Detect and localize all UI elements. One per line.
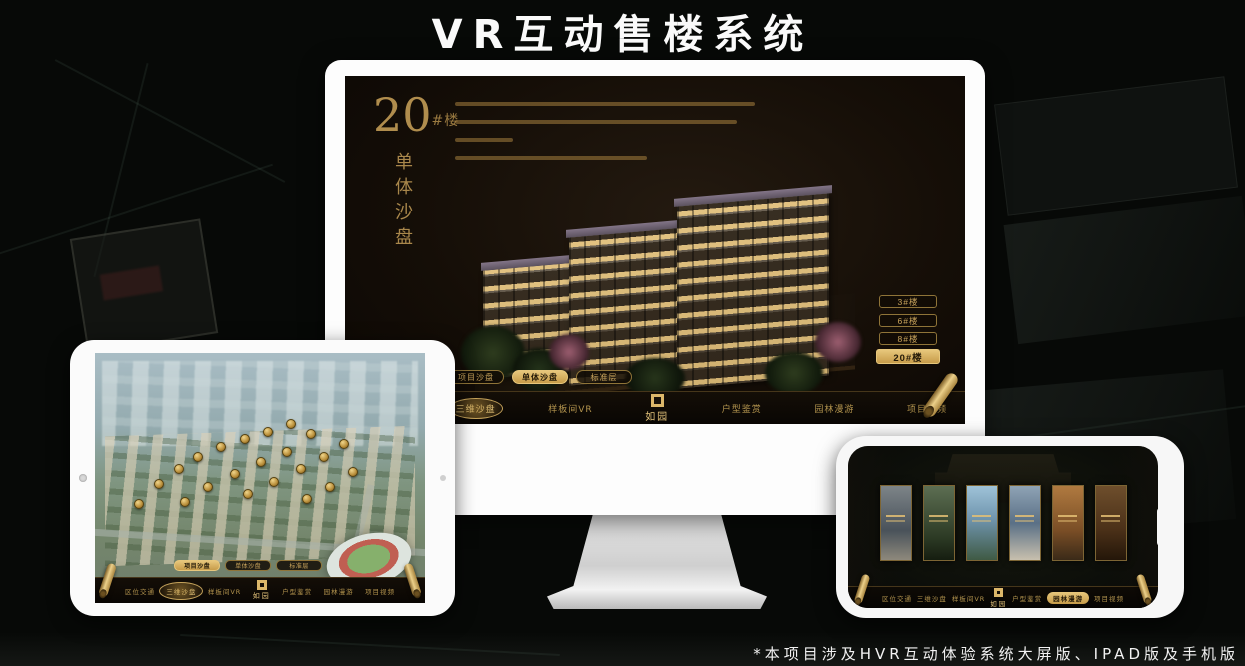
phone-navbar: 区位交通 三维沙盘 样板间VR 如园 户型鉴赏 园林漫游 项目视频 xyxy=(848,586,1158,608)
nav-item-showroom-vr[interactable]: 样板间VR xyxy=(208,586,241,596)
nav-item-floorplans[interactable]: 户型鉴赏 xyxy=(282,586,312,596)
nav-item-location[interactable]: 区位交通 xyxy=(125,586,155,596)
building-number-badge[interactable] xyxy=(174,464,184,474)
building-number-badge[interactable] xyxy=(230,469,240,479)
page-root: VR互动售楼系统 *本项目涉及HVR互动体验系统大屏版、IPAD版及手机版 20… xyxy=(0,0,1245,666)
tablet-navbar: 区位交通 三维沙盘 样板间VR 如园 户型鉴赏 园林漫游 项目视频 xyxy=(95,577,425,603)
tablet-device: 项目沙盘 单体沙盘 标准层 区位交通 三维沙盘 样板间VR 如园 户型鉴赏 园林… xyxy=(70,340,455,616)
floor-button-8[interactable]: 8#楼 xyxy=(879,332,937,345)
gallery-panel[interactable] xyxy=(1095,485,1127,561)
nav-item-floorplans[interactable]: 户型鉴赏 xyxy=(1012,593,1042,603)
building-number: 20 xyxy=(373,88,432,142)
nav-item-location[interactable]: 区位交通 xyxy=(882,593,912,603)
building-number-badge[interactable] xyxy=(154,479,164,489)
building-number-badge[interactable] xyxy=(216,442,226,452)
building-number-badge[interactable] xyxy=(282,447,292,457)
tab-project-sandbox[interactable]: 项目沙盘 xyxy=(448,370,504,384)
logo-seal-icon xyxy=(651,394,664,407)
phone-device: 区位交通 三维沙盘 样板间VR 如园 户型鉴赏 园林漫游 项目视频 xyxy=(836,436,1184,618)
gallery-panel[interactable] xyxy=(1009,485,1041,561)
building-number-badge[interactable] xyxy=(339,439,349,449)
brand-logo: 如园 xyxy=(990,588,1007,608)
tab-standard-floor[interactable]: 标准层 xyxy=(576,370,632,384)
nav-item-project-video[interactable]: 项目视频 xyxy=(1094,593,1124,603)
floor-button-20[interactable]: 20#楼 xyxy=(876,349,940,364)
nav-item-3d-sandbox[interactable]: 三维沙盘 xyxy=(917,593,947,603)
nav-item-project-video[interactable]: 项目视频 xyxy=(365,586,395,596)
building-number-badge[interactable] xyxy=(203,482,213,492)
gallery-panels xyxy=(848,485,1158,561)
floor-button-3[interactable]: 3#楼 xyxy=(879,295,937,308)
tab-project-sandbox[interactable]: 项目沙盘 xyxy=(174,560,220,571)
gallery-panel[interactable] xyxy=(880,485,912,561)
building-number-badge[interactable] xyxy=(296,464,306,474)
floor-button-6[interactable]: 6#楼 xyxy=(879,314,937,327)
brand-logo: 如园 xyxy=(253,580,271,601)
building-number-badge[interactable] xyxy=(256,457,266,467)
phone-screen: 区位交通 三维沙盘 样板间VR 如园 户型鉴赏 园林漫游 项目视频 xyxy=(848,446,1158,608)
building-number-badge[interactable] xyxy=(319,452,329,462)
background-plaque xyxy=(70,218,219,353)
tablet-screen: 项目沙盘 单体沙盘 标准层 区位交通 三维沙盘 样板间VR 如园 户型鉴赏 园林… xyxy=(95,353,425,603)
building-headline: 20#楼 xyxy=(373,92,459,138)
building-number-badge[interactable] xyxy=(302,494,312,504)
tab-single-sandbox[interactable]: 单体沙盘 xyxy=(225,560,271,571)
nav-item-garden-roam[interactable]: 园林漫游 xyxy=(324,586,354,596)
page-title: VR互动售楼系统 xyxy=(0,2,1245,60)
nav-item-floorplans[interactable]: 户型鉴赏 xyxy=(722,402,762,415)
building-number-badge[interactable] xyxy=(240,434,250,444)
gallery-panel[interactable] xyxy=(966,485,998,561)
nav-item-showroom-vr[interactable]: 样板间VR xyxy=(952,593,985,603)
phone-notch xyxy=(1157,507,1166,547)
tablet-camera-icon xyxy=(79,474,87,482)
nav-item-showroom-vr[interactable]: 样板间VR xyxy=(548,402,592,415)
tablet-view-tabs: 项目沙盘 单体沙盘 标准层 xyxy=(174,560,322,571)
tablet-home-button[interactable] xyxy=(440,475,446,481)
monitor-view-tabs: 项目沙盘 单体沙盘 标准层 xyxy=(448,370,632,384)
logo-text: 如园 xyxy=(990,598,1007,608)
building-number-badge[interactable] xyxy=(193,452,203,462)
building-number-badge[interactable] xyxy=(263,427,273,437)
nav-item-garden-roam[interactable]: 园林漫游 xyxy=(1047,592,1089,604)
tab-single-sandbox[interactable]: 单体沙盘 xyxy=(512,370,568,384)
building-number-badge[interactable] xyxy=(286,419,296,429)
logo-seal-icon xyxy=(257,580,267,590)
building-number-badge[interactable] xyxy=(325,482,335,492)
building-number-badge[interactable] xyxy=(348,467,358,477)
building-number-badge[interactable] xyxy=(180,497,190,507)
nav-item-3d-sandbox[interactable]: 三维沙盘 xyxy=(456,402,496,415)
building-number-badge[interactable] xyxy=(269,477,279,487)
building-number-badge[interactable] xyxy=(134,499,144,509)
logo-text: 如园 xyxy=(645,408,669,423)
footnote-text: *本项目涉及HVR互动体验系统大屏版、IPAD版及手机版 xyxy=(753,643,1239,664)
gallery-panel[interactable] xyxy=(923,485,955,561)
logo-text: 如园 xyxy=(253,591,271,601)
monitor-stand xyxy=(547,513,767,609)
building-number-badge[interactable] xyxy=(243,489,253,499)
building-number-badge[interactable] xyxy=(306,429,316,439)
brand-logo: 如园 xyxy=(645,394,669,423)
gallery-panel[interactable] xyxy=(1052,485,1084,561)
building-subtitle-vertical: 单体沙盘 xyxy=(389,152,415,252)
logo-seal-icon xyxy=(994,588,1003,597)
nav-item-3d-sandbox[interactable]: 三维沙盘 xyxy=(166,586,196,596)
tab-standard-floor[interactable]: 标准层 xyxy=(276,560,322,571)
nav-item-garden-roam[interactable]: 园林漫游 xyxy=(814,402,854,415)
